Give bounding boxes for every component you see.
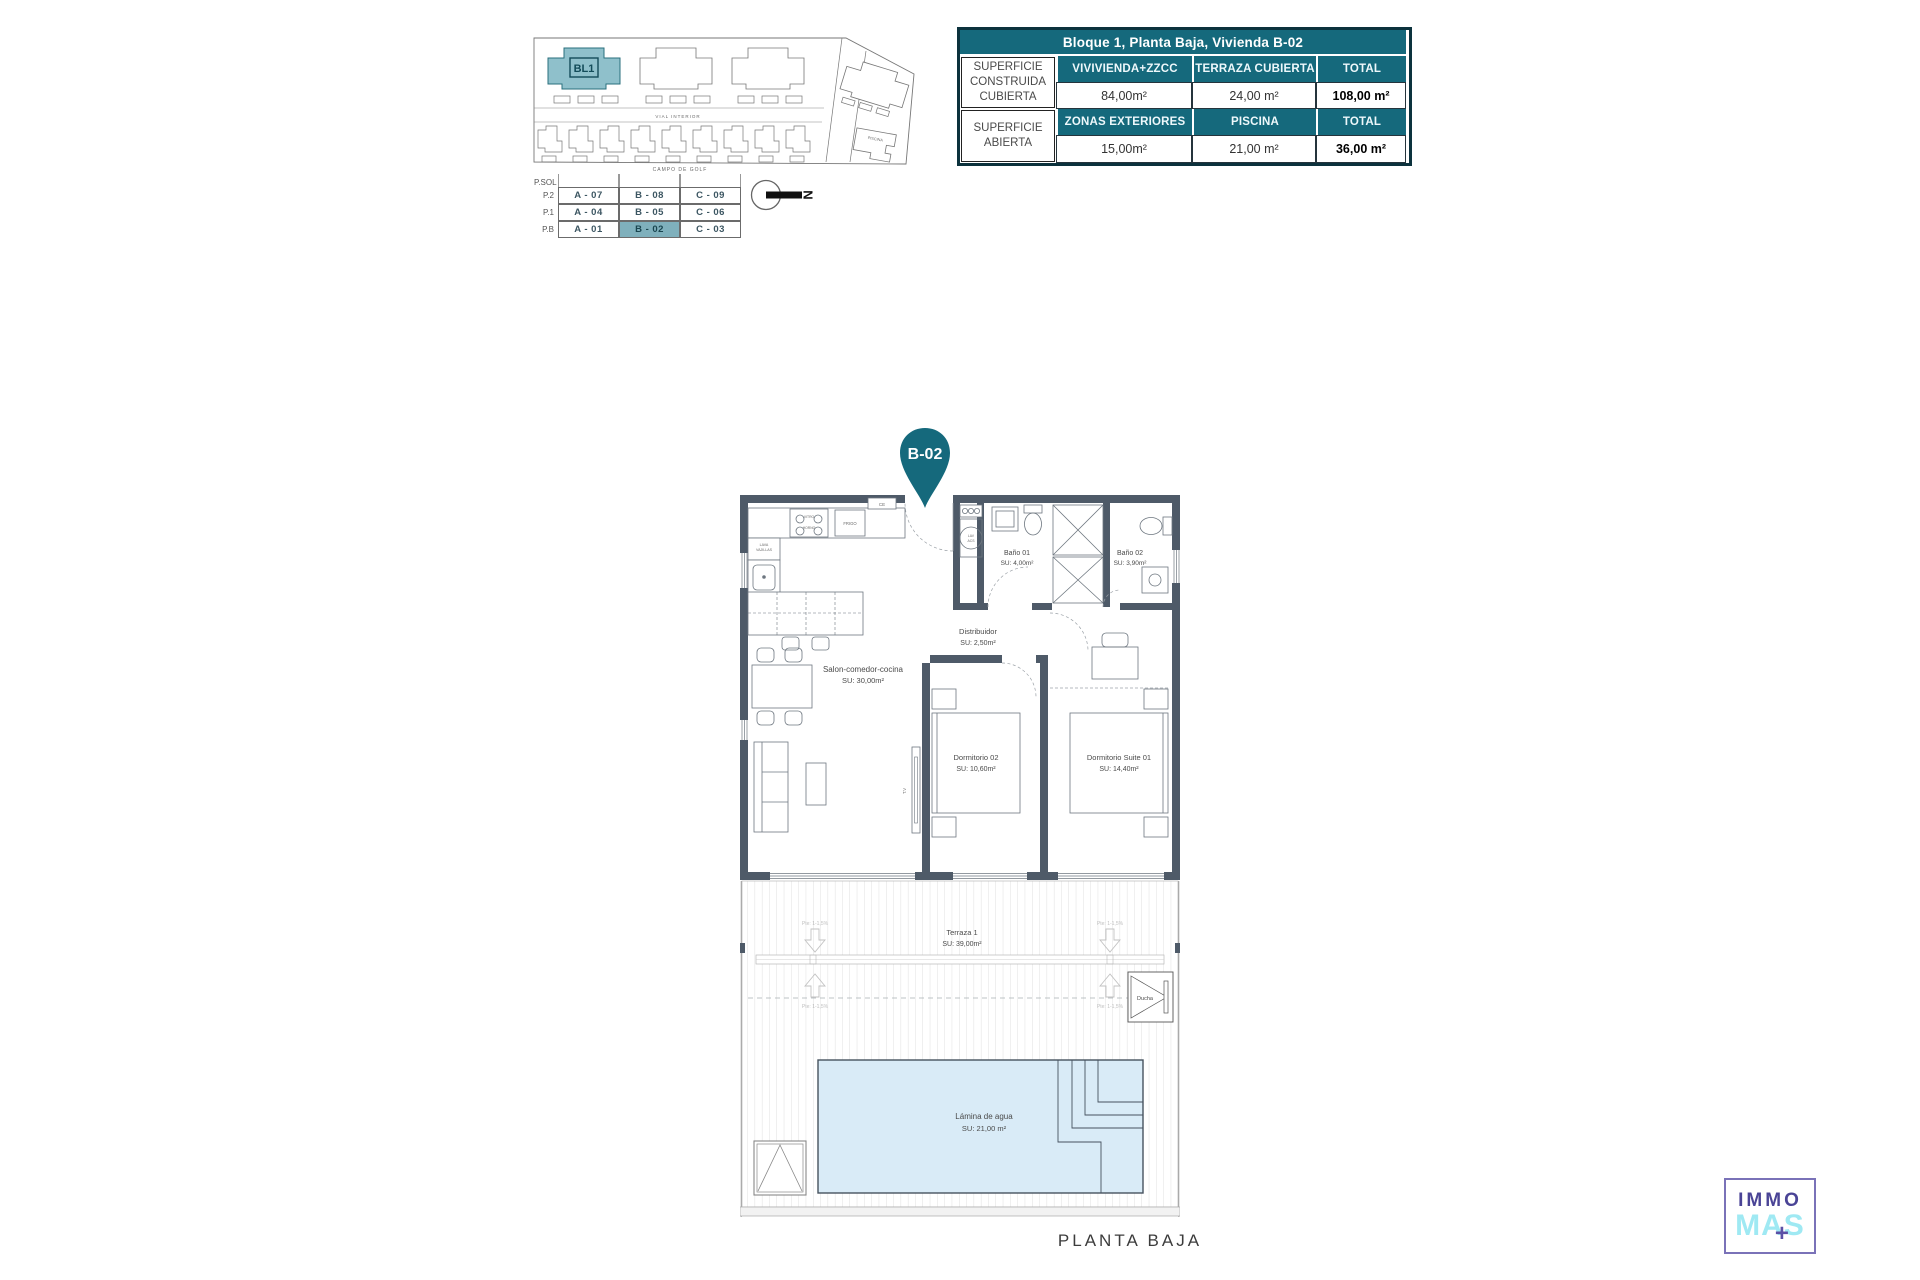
- site-plan-map: BL1 VIAL INTERIOR CAMPO DE GOLF PISCINA: [528, 24, 926, 176]
- bano1-name: Baño 01: [1004, 550, 1030, 557]
- salon-area: SU: 30,00m²: [842, 676, 885, 685]
- lavavajillas-label-2: VAJILLAS: [756, 548, 773, 552]
- logo-immo-text: IMMO: [1738, 1191, 1802, 1210]
- dorm2-name: Dormitorio 02: [953, 753, 998, 762]
- outdoor-shower: Ducha: [1128, 972, 1173, 1022]
- unit-cell-c03[interactable]: C - 03: [680, 221, 741, 238]
- pin-label: B-02: [908, 446, 943, 463]
- bed-dorm2: [932, 713, 1020, 813]
- unit-cell-c09[interactable]: C - 09: [680, 187, 741, 204]
- north-letter: N: [801, 190, 816, 199]
- floor-selector-table: P.SOL P.2 A - 07 B - 08 C - 09 P.1 A - 0…: [532, 174, 741, 238]
- salon-name: Salon-comedor-cocina: [823, 665, 904, 674]
- floor-label-p1: P.1: [532, 204, 558, 221]
- col-total-1: TOTAL: [1316, 56, 1406, 82]
- bl1-label: BL1: [574, 63, 595, 75]
- bedroom2-furniture: [932, 689, 1020, 837]
- building-2: [640, 48, 712, 89]
- vitro-label: VITRO: [804, 515, 815, 519]
- drainage-channel: [756, 955, 1164, 964]
- unit-cell-c06[interactable]: C - 06: [680, 204, 741, 221]
- pin-shape: [900, 428, 950, 508]
- unit-pin: B-02: [897, 426, 953, 512]
- pool-name: Lámina de agua: [955, 1112, 1013, 1121]
- bano1-area: SU: 4,00m²: [1001, 560, 1035, 567]
- unit-cell-a07[interactable]: A - 07: [558, 187, 619, 204]
- slope-label: Pte: 1-1,5%: [802, 1004, 829, 1010]
- piscina-label: PISCINA: [867, 136, 883, 143]
- coffee-table: [806, 763, 826, 805]
- distribuidor-name: Distribuidor: [959, 627, 997, 636]
- grid-stub: [558, 174, 619, 187]
- grid-stub: [680, 174, 741, 187]
- val-zonas-exteriores: 15,00m²: [1056, 135, 1192, 163]
- tv-unit: [912, 747, 920, 833]
- acs-label: ACS: [968, 539, 976, 543]
- suite-area: SU: 14,40m²: [1099, 766, 1139, 773]
- ducha-label: Ducha: [1137, 996, 1154, 1002]
- cooktop: [790, 509, 828, 537]
- desk: [1092, 647, 1138, 679]
- unit-cell-a01[interactable]: A - 01: [558, 221, 619, 238]
- col-total-2: TOTAL: [1316, 109, 1406, 135]
- slope-label: Pte: 1-1,5%: [802, 921, 829, 927]
- val-piscina: 21,00 m²: [1192, 135, 1316, 163]
- unit-cell-b08[interactable]: B - 08: [619, 187, 680, 204]
- floor-plan: Pte: 1-1,5% Pte: 1-1,5% Pte: 1-1,5% Pte:…: [740, 495, 1180, 1225]
- unit-cell-b05[interactable]: B - 05: [619, 204, 680, 221]
- bathroom1-fixtures: [992, 505, 1042, 535]
- slope-label: Pte: 1-1,5%: [1097, 1004, 1124, 1010]
- kitchen-furniture: [748, 508, 905, 650]
- shower-wardrobe: [1053, 505, 1103, 603]
- terrace-hatch: [754, 1141, 806, 1195]
- floor-label-pb: P.B: [532, 221, 558, 238]
- floor-table-corner: P.SOL: [532, 174, 558, 187]
- ce-label: CE: [879, 502, 885, 507]
- surface-table-title: Bloque 1, Planta Baja, Vivienda B-02: [960, 30, 1406, 56]
- val-terraza-cubierta: 24,00 m²: [1192, 82, 1316, 109]
- frigo-label: FRIGO: [843, 521, 857, 526]
- pool: Lámina de agua SU: 21,00 m²: [818, 1060, 1143, 1193]
- grid-stub: [619, 174, 680, 187]
- immomas-logo: IMMO MAS +: [1724, 1178, 1816, 1254]
- terrace: Pte: 1-1,5% Pte: 1-1,5% Pte: 1-1,5% Pte:…: [740, 881, 1180, 1217]
- bano2-area: SU: 3,90m²: [1114, 560, 1148, 567]
- north-arrow-icon: N: [744, 172, 820, 218]
- lavavajillas-label-1: LAVA: [760, 543, 769, 547]
- val-total-construida: 108,00 m²: [1316, 82, 1406, 109]
- campo-de-golf-label: CAMPO DE GOLF: [653, 167, 708, 173]
- unit-cell-a04[interactable]: A - 04: [558, 204, 619, 221]
- kitchen-island: [748, 592, 863, 635]
- vial-interior-label: VIAL INTERIOR: [655, 114, 700, 119]
- slope-label: Pte: 1-1,5%: [1097, 921, 1124, 927]
- bano2-name: Baño 02: [1117, 550, 1143, 557]
- suite-name: Dormitorio Suite 01: [1087, 753, 1151, 762]
- terraza-area: SU: 39,00m²: [942, 941, 982, 948]
- logo-mas-text: MAS: [1735, 1209, 1805, 1242]
- horno-label: HORNO: [803, 526, 816, 530]
- suite-furniture: [1050, 633, 1170, 837]
- distribuidor-area: SU: 2,50m²: [960, 640, 996, 647]
- building-3: [732, 48, 804, 89]
- parking-row-top: [554, 96, 802, 103]
- tv-label: T.V: [902, 788, 907, 794]
- val-total-abierta: 36,00 m²: [1316, 135, 1406, 163]
- piscina-building: PISCINA: [852, 128, 896, 163]
- logo-plus-icon: +: [1775, 1222, 1789, 1246]
- label-superficie-abierta: SUPERFICIE ABIERTA: [961, 110, 1055, 162]
- living-furniture: [752, 648, 920, 833]
- sofa: [754, 742, 788, 832]
- col-zonas-exteriores: ZONAS EXTERIORES: [1056, 109, 1192, 135]
- bathroom2-fixtures: [1140, 517, 1172, 593]
- terrace-edge: [740, 1207, 1180, 1216]
- col-piscina: PISCINA: [1192, 109, 1316, 135]
- electrical-box: CE: [868, 498, 896, 509]
- val-vivienda: 84,00m²: [1056, 82, 1192, 109]
- label-superficie-construida: SUPERFICIE CONSTRUIDA CUBIERTA: [961, 57, 1055, 108]
- pool-area: SU: 21,00 m²: [962, 1124, 1007, 1133]
- villas-row: [538, 126, 810, 162]
- page-canvas: BL1 VIAL INTERIOR CAMPO DE GOLF PISCINA …: [0, 0, 1920, 1280]
- terraza-name: Terraza 1: [946, 928, 977, 937]
- col-vivienda-zzcc: VIVIVIENDA+ZZCC: [1056, 56, 1192, 82]
- surface-table: Bloque 1, Planta Baja, Vivienda B-02 SUP…: [957, 27, 1412, 166]
- col-terraza-cubierta: TERRAZA CUBIERTA: [1192, 56, 1316, 82]
- dorm2-area: SU: 10,60m²: [956, 766, 996, 773]
- bed-suite: [1070, 713, 1168, 813]
- unit-cell-b02-selected[interactable]: B - 02: [619, 221, 680, 238]
- floor-label-p2: P.2: [532, 187, 558, 204]
- dining-table: [752, 665, 812, 708]
- lav-label: LAV: [968, 534, 975, 538]
- plan-caption: PLANTA BAJA: [1020, 1231, 1240, 1251]
